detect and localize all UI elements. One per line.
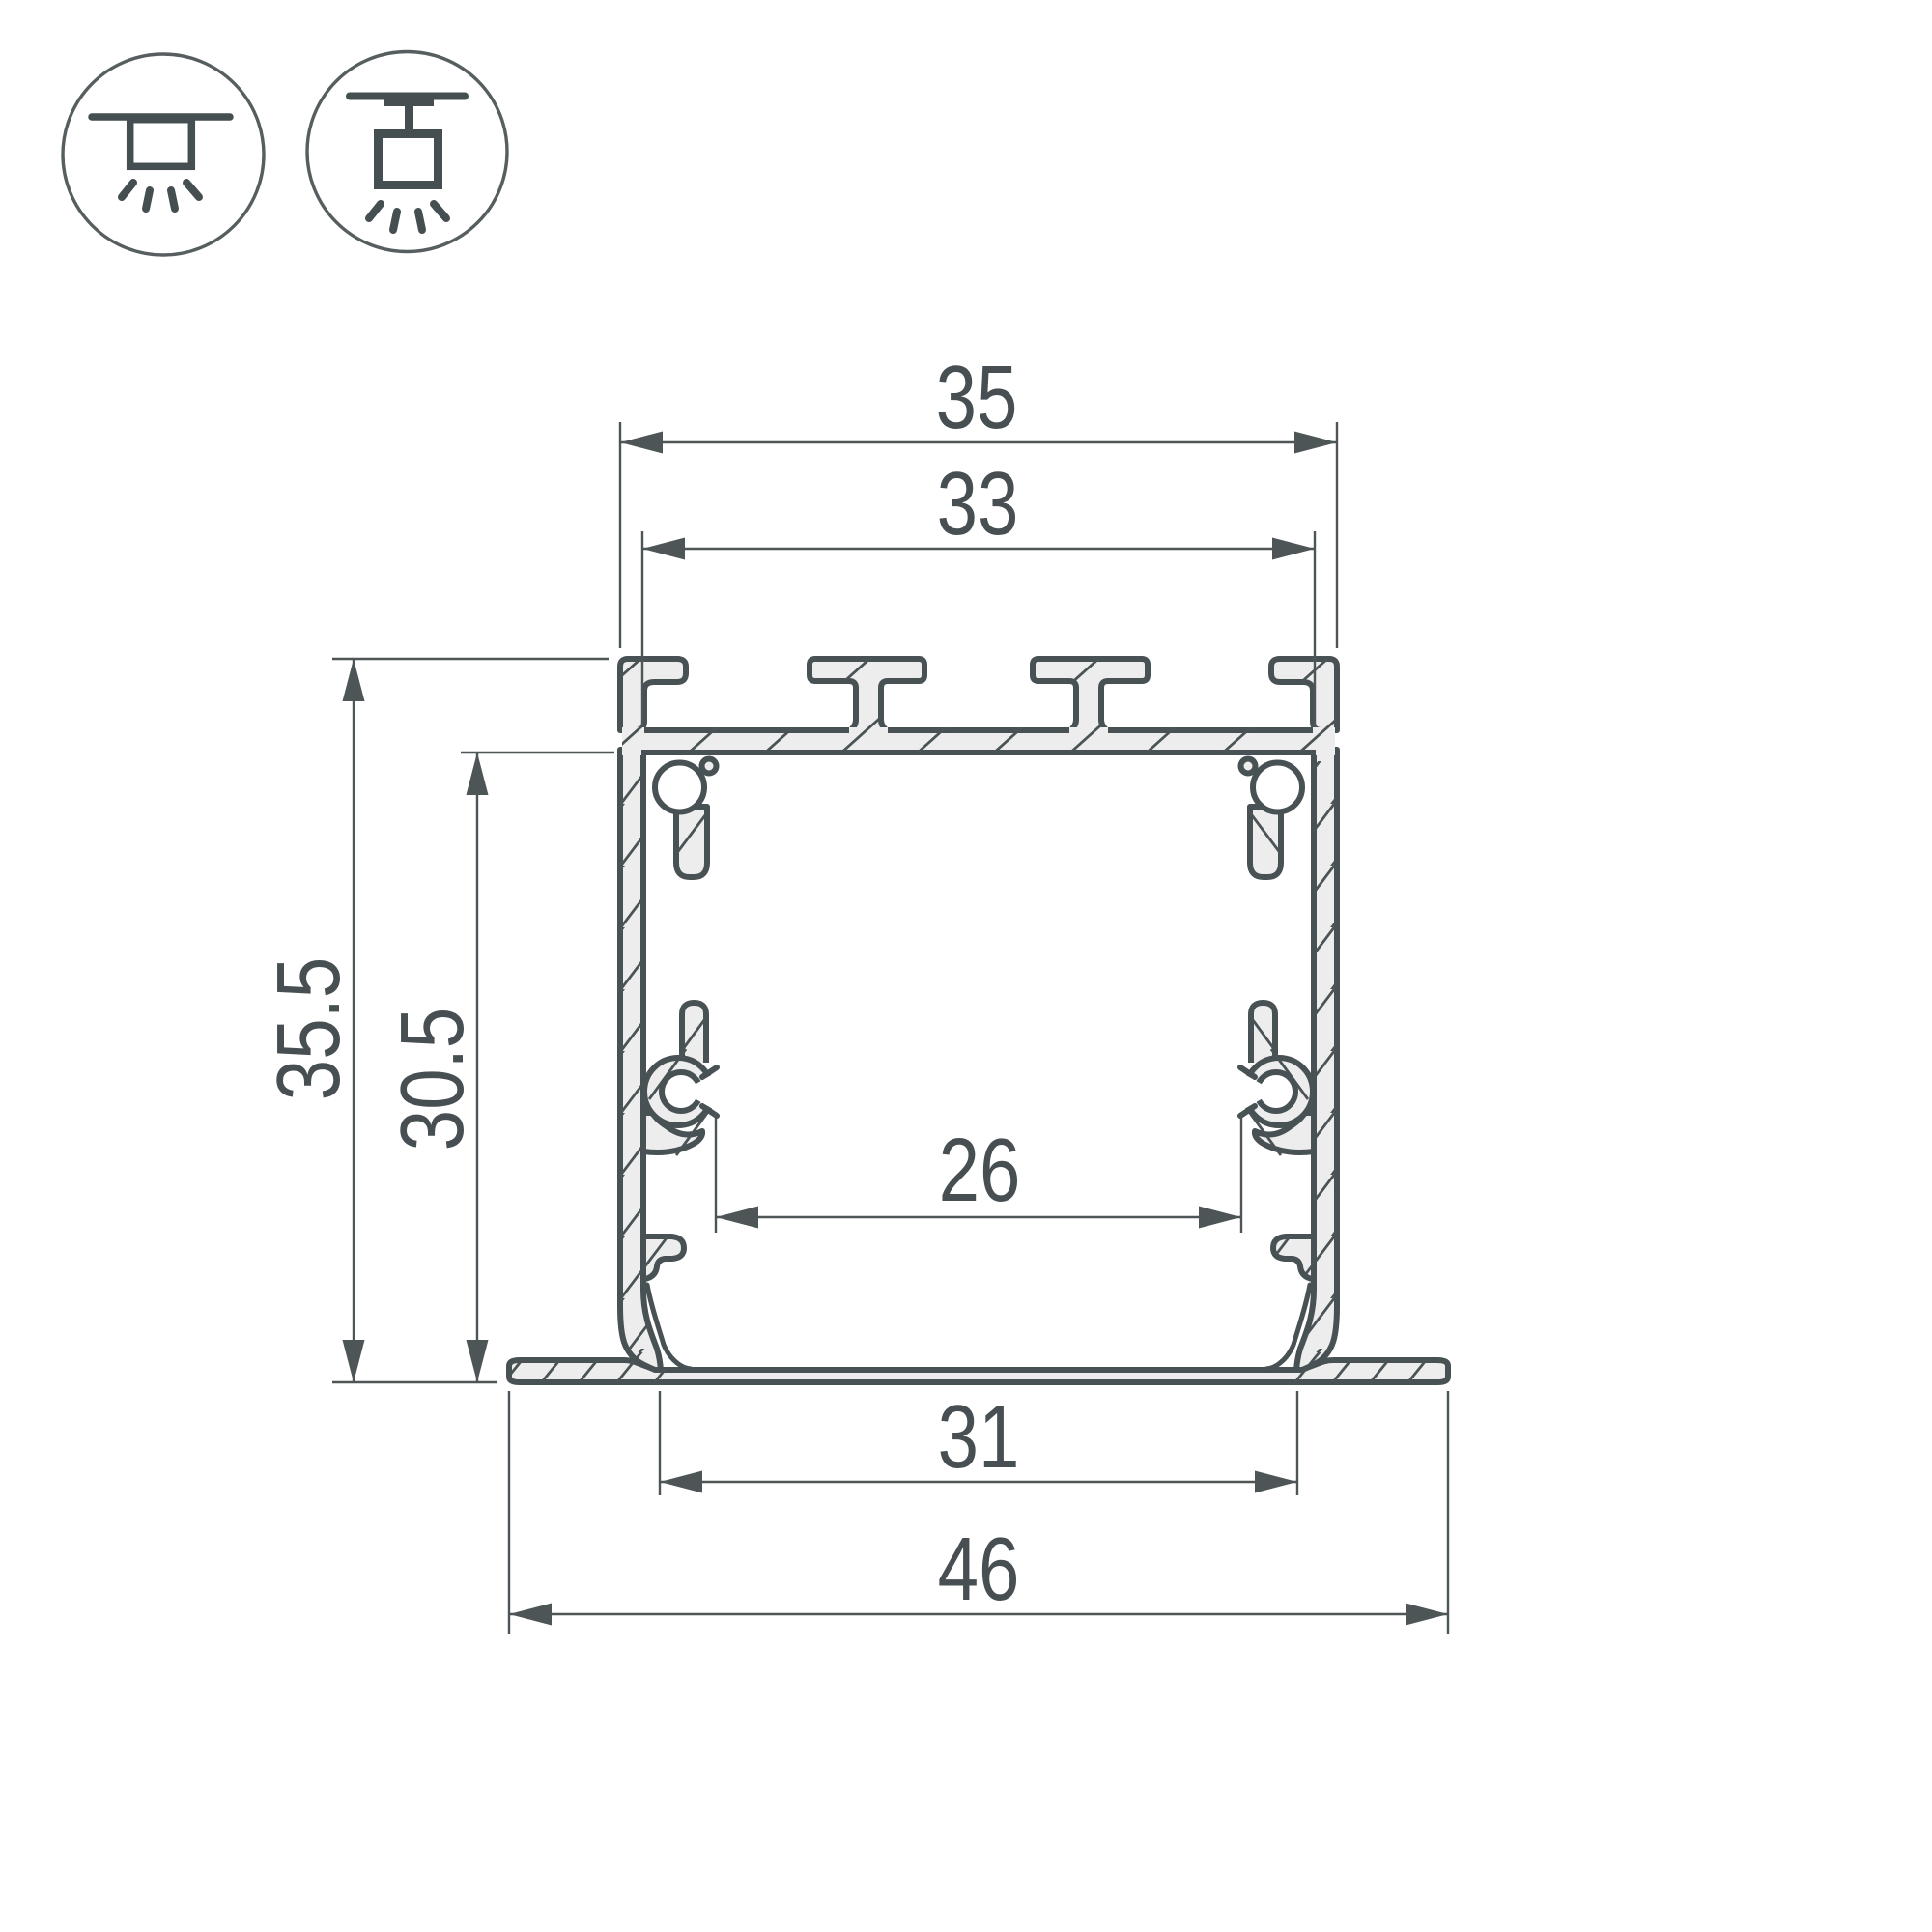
- svg-text:26: 26: [939, 1121, 1021, 1221]
- svg-text:33: 33: [937, 454, 1019, 554]
- svg-text:35.5: 35.5: [259, 957, 359, 1100]
- svg-text:31: 31: [938, 1387, 1020, 1488]
- svg-text:30.5: 30.5: [383, 1008, 483, 1151]
- svg-text:35: 35: [936, 348, 1018, 448]
- svg-text:46: 46: [938, 1520, 1020, 1620]
